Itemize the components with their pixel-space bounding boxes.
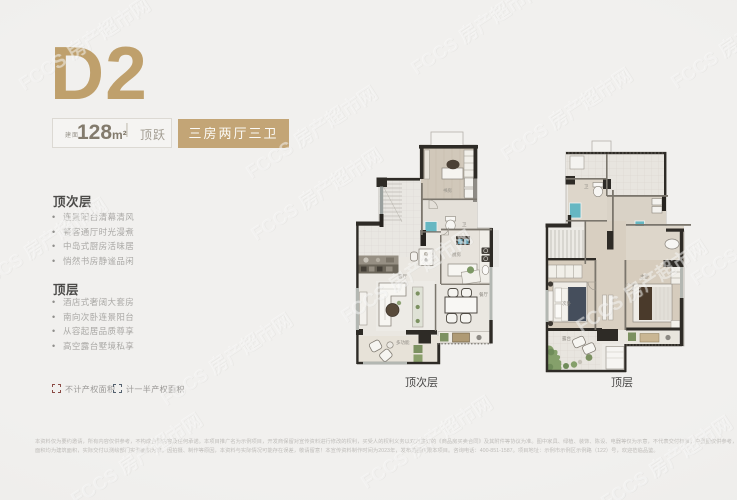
svg-text:餐厅: 餐厅 [479,291,488,298]
svg-text:卫: 卫 [584,184,589,189]
svg-text:书房: 书房 [443,187,452,194]
svg-text:次卧: 次卧 [562,300,571,307]
svg-text:多功能: 多功能 [396,339,410,346]
svg-text:露台: 露台 [562,335,571,342]
